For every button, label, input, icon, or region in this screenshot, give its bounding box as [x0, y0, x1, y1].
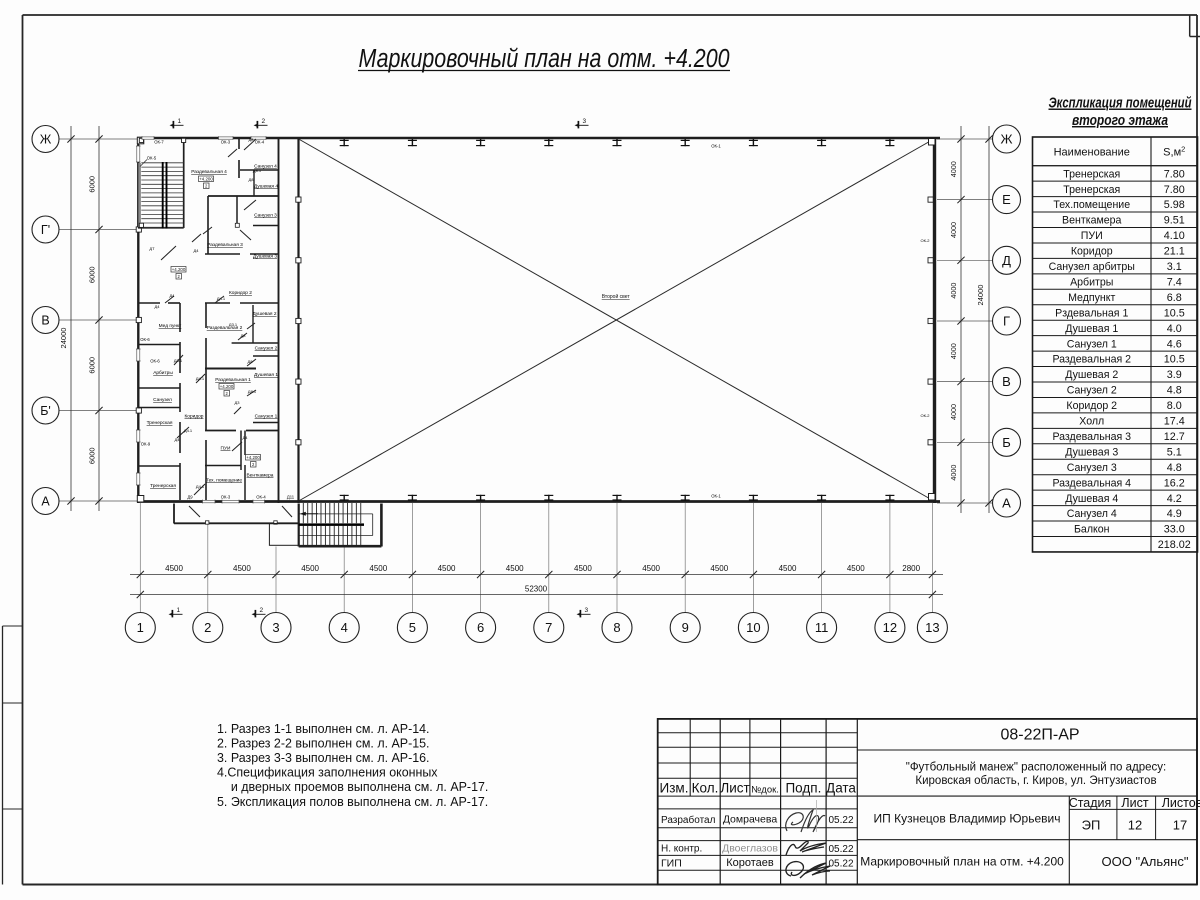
svg-text:Санузел 1: Санузел 1 [255, 414, 278, 420]
svg-text:Балкон: Балкон [1074, 524, 1110, 536]
svg-text:Раздевальная 4: Раздевальная 4 [191, 169, 227, 175]
svg-text:4500: 4500 [779, 564, 797, 573]
svg-text:Стадия: Стадия [1069, 796, 1112, 810]
svg-text:4000: 4000 [949, 465, 958, 481]
svg-text:Ж: Ж [40, 132, 52, 146]
svg-text:Двоеглазов: Двоеглазов [722, 842, 778, 854]
svg-text:Изм.: Изм. [660, 780, 689, 795]
svg-text:Раздевальная 2: Раздевальная 2 [207, 325, 243, 331]
svg-text:05.22: 05.22 [828, 859, 853, 870]
svg-text:3.1: 3.1 [1167, 261, 1182, 273]
svg-text:Санузел 1: Санузел 1 [1067, 338, 1117, 350]
svg-text:17: 17 [1173, 818, 1187, 833]
svg-text:Г': Г' [41, 223, 50, 237]
svg-text:Второй свет: Второй свет [602, 293, 631, 300]
svg-text:Душевая 4: Душевая 4 [254, 184, 278, 190]
svg-text:Листов: Листов [1162, 796, 1200, 810]
svg-text:Арбитры: Арбитры [1070, 276, 1113, 288]
svg-text:№док.: №док. [751, 785, 779, 796]
svg-text:Д8.1: Д8.1 [253, 168, 262, 173]
svg-text:7.80: 7.80 [1164, 184, 1185, 196]
svg-text:ОК-3: ОК-3 [221, 140, 231, 145]
svg-text:Раздевальная 3: Раздевальная 3 [1052, 431, 1131, 443]
svg-text:Маркировочный план на отм. +4.: Маркировочный план на отм. +4.200 [860, 855, 1064, 869]
svg-text:Маркировочный план на отм. +4.: Маркировочный план на отм. +4.200 [359, 45, 730, 73]
svg-text:4.6: 4.6 [1167, 338, 1182, 350]
svg-text:Раздевальная 4: Раздевальная 4 [1052, 477, 1131, 489]
svg-text:Коротаев: Коротаев [726, 857, 774, 869]
svg-text:12: 12 [883, 620, 897, 635]
svg-text:4.2: 4.2 [1167, 493, 1182, 505]
svg-text:Мед пункт: Мед пункт [159, 323, 183, 329]
svg-text:10: 10 [746, 620, 760, 635]
svg-text:Кол.: Кол. [692, 780, 719, 795]
svg-text:Д3.1: Д3.1 [174, 358, 183, 363]
svg-text:Коридор 2: Коридор 2 [229, 290, 252, 296]
svg-text:Тренерская: Тренерская [147, 420, 173, 426]
svg-text:Тренерская: Тренерская [1063, 184, 1120, 196]
svg-text:7.80: 7.80 [1164, 168, 1185, 180]
svg-text:8.0: 8.0 [1167, 400, 1182, 412]
svg-text:Лист: Лист [1121, 796, 1148, 810]
svg-text:Коридор: Коридор [1071, 246, 1113, 258]
svg-text:+4.200: +4.200 [220, 384, 234, 389]
svg-text:2: 2 [259, 607, 263, 614]
svg-text:Экспликация помещений: Экспликация помещений [1049, 96, 1192, 112]
svg-text:2800: 2800 [902, 564, 920, 573]
svg-text:17.4: 17.4 [1164, 416, 1185, 428]
svg-text:Д9: Д9 [187, 495, 193, 500]
svg-text:4.0: 4.0 [1167, 323, 1182, 335]
svg-text:ОК-9: ОК-9 [141, 442, 151, 447]
svg-text:"Футбольный манеж" расположенн: "Футбольный манеж" расположенный по адре… [906, 762, 1167, 774]
svg-text:Подп.: Подп. [785, 780, 821, 795]
svg-text:ООО "Альянс": ООО "Альянс" [1102, 854, 1189, 869]
svg-text:6: 6 [477, 620, 484, 635]
svg-text:1. Разрез 1-1 выполнен см. л.: 1. Разрез 1-1 выполнен см. л. АР-14. [217, 722, 430, 736]
svg-text:ЭП: ЭП [1082, 818, 1101, 833]
svg-text:4500: 4500 [369, 564, 387, 573]
svg-text:Душевая 4: Душевая 4 [1065, 493, 1118, 505]
svg-text:9.51: 9.51 [1164, 215, 1185, 227]
svg-text:Е: Е [1002, 192, 1011, 207]
svg-text:Раздевальная 1: Раздевальная 1 [215, 377, 251, 383]
svg-text:ОК-3: ОК-3 [221, 495, 231, 500]
svg-text:4000: 4000 [949, 222, 958, 238]
svg-text:ДТ: ДТ [149, 246, 155, 251]
svg-text:Санузел 3: Санузел 3 [1067, 462, 1117, 474]
svg-text:Б: Б [1002, 435, 1011, 450]
svg-text:Венткамера: Венткамера [1062, 215, 1121, 227]
svg-text:Душевая 2: Душевая 2 [1065, 369, 1118, 381]
svg-text:Д4: Д4 [194, 248, 200, 253]
svg-text:4500: 4500 [301, 564, 319, 573]
svg-text:Д4: Д4 [170, 293, 176, 298]
svg-text:12.7: 12.7 [1164, 431, 1185, 443]
svg-text:4.9: 4.9 [1167, 508, 1182, 520]
svg-text:4000: 4000 [949, 283, 958, 299]
svg-text:3. Разрез 3-3 выполнен см. л.: 3. Разрез 3-3 выполнен см. л. АР-16. [217, 751, 430, 765]
svg-text:Д11: Д11 [287, 495, 295, 500]
svg-text:ОК-2: ОК-2 [921, 238, 931, 243]
svg-text:Рздевальная 1: Рздевальная 1 [1055, 307, 1128, 319]
svg-text:ОК-5: ОК-5 [147, 156, 157, 161]
svg-text:4500: 4500 [438, 564, 456, 573]
svg-text:Д4.1: Д4.1 [184, 428, 193, 433]
svg-text:Раздевальная 3: Раздевальная 3 [207, 242, 243, 248]
svg-text:4500: 4500 [710, 564, 728, 573]
svg-text:Душевая 1: Душевая 1 [1065, 323, 1118, 335]
svg-text:9: 9 [682, 620, 689, 635]
svg-text:ОК-6: ОК-6 [140, 337, 150, 342]
svg-text:Дата: Дата [826, 780, 856, 795]
svg-text:24000: 24000 [976, 285, 985, 306]
svg-text:Душевая 2: Душевая 2 [252, 311, 276, 317]
svg-text:Д8: Д8 [249, 177, 255, 182]
svg-text:33.0: 33.0 [1164, 524, 1185, 536]
svg-text:Санузел: Санузел [153, 397, 172, 403]
svg-text:ОК-1: ОК-1 [711, 144, 721, 149]
svg-text:А: А [41, 494, 50, 508]
svg-text:Домрачева: Домрачева [723, 813, 778, 825]
svg-text:+4.200: +4.200 [246, 455, 260, 460]
svg-text:13: 13 [925, 620, 939, 635]
svg-text:Д4: Д4 [243, 435, 249, 440]
svg-text:Д8: Д8 [248, 359, 254, 364]
svg-text:ПУИ: ПУИ [1081, 230, 1103, 242]
svg-text:10.5: 10.5 [1164, 354, 1185, 366]
svg-text:ОК-6: ОК-6 [150, 359, 160, 364]
svg-text:+4.200: +4.200 [199, 176, 213, 181]
svg-text:Санузел 2: Санузел 2 [255, 346, 278, 352]
svg-text:3: 3 [584, 607, 588, 614]
svg-text:Холл: Холл [1079, 416, 1104, 428]
svg-text:3.9: 3.9 [1167, 369, 1182, 381]
svg-text:4500: 4500 [847, 564, 865, 573]
svg-text:ГИП: ГИП [661, 857, 682, 869]
svg-text:Д8: Д8 [241, 333, 247, 338]
svg-text:Санузел 3: Санузел 3 [254, 213, 277, 219]
svg-text:и дверных проемов выполнена см: и дверных проемов выполнена см. л. АР-17… [217, 780, 488, 794]
svg-text:6000: 6000 [88, 447, 97, 464]
svg-text:5. Экспликация полов выполнена: 5. Экспликация полов выполнена см. л. АР… [217, 795, 488, 809]
svg-text:7: 7 [545, 620, 552, 635]
svg-text:ИП Кузнецов Владимир Юрьевич: ИП Кузнецов Владимир Юрьевич [874, 812, 1061, 826]
svg-text:8: 8 [613, 620, 620, 635]
svg-text:ОК-1: ОК-1 [711, 494, 721, 499]
svg-text:4.8: 4.8 [1167, 462, 1182, 474]
svg-text:1: 1 [176, 607, 180, 614]
svg-text:4.8: 4.8 [1167, 385, 1182, 397]
svg-text:Тех.помещение: Тех.помещение [1053, 199, 1130, 211]
svg-text:Коридор 2: Коридор 2 [1066, 400, 1117, 412]
svg-text:Г: Г [1003, 314, 1010, 329]
svg-text:21.1: 21.1 [1164, 246, 1185, 258]
svg-text:Тех. помещение: Тех. помещение [206, 478, 242, 484]
svg-text:6000: 6000 [88, 176, 97, 193]
svg-text:Б': Б' [40, 404, 51, 418]
svg-text:В: В [41, 313, 49, 327]
svg-text:2: 2 [261, 118, 265, 125]
svg-text:4500: 4500 [165, 564, 183, 573]
svg-text:Д3: Д3 [235, 400, 241, 405]
svg-text:1: 1 [137, 620, 144, 635]
svg-text:Д4.1: Д4.1 [196, 376, 205, 381]
svg-text:05.22: 05.22 [828, 815, 853, 826]
svg-text:4.10: 4.10 [1164, 230, 1185, 242]
svg-text:А: А [1002, 496, 1011, 511]
svg-text:Д8: Д8 [249, 137, 255, 142]
svg-text:Венткамера: Венткамера [247, 473, 274, 479]
svg-text:5.98: 5.98 [1164, 199, 1185, 211]
svg-text:Арбитры: Арбитры [153, 370, 173, 376]
svg-text:ОК-4: ОК-4 [255, 140, 265, 145]
svg-text:Тренерская: Тренерская [150, 483, 176, 489]
svg-text:Н. контр.: Н. контр. [661, 844, 702, 855]
svg-text:ОК-4: ОК-4 [256, 495, 266, 500]
svg-text:12: 12 [1128, 818, 1142, 833]
svg-text:4000: 4000 [949, 404, 958, 420]
svg-text:Наименование: Наименование [1054, 146, 1130, 158]
svg-text:4500: 4500 [574, 564, 592, 573]
svg-text:Душевая 1: Душевая 1 [254, 372, 278, 378]
svg-text:11: 11 [815, 620, 829, 635]
svg-text:7.4: 7.4 [1167, 276, 1182, 288]
svg-text:3: 3 [582, 118, 586, 125]
svg-text:16.2: 16.2 [1164, 477, 1185, 489]
svg-text:ОК-7: ОК-7 [154, 140, 164, 145]
svg-text:2. Разрез 2-2 выполнен см. л.: 2. Разрез 2-2 выполнен см. л. АР-15. [217, 737, 430, 751]
svg-text:218.02: 218.02 [1158, 539, 1191, 551]
svg-text:4000: 4000 [949, 161, 958, 177]
svg-text:4500: 4500 [506, 564, 524, 573]
svg-text:Медпункт: Медпункт [1068, 292, 1115, 304]
svg-text:Ж: Ж [1000, 132, 1012, 147]
svg-text:Душевая 3: Душевая 3 [1065, 446, 1118, 458]
svg-text:4500: 4500 [642, 564, 660, 573]
svg-text:Лист: Лист [720, 780, 749, 795]
svg-text:6000: 6000 [88, 266, 97, 283]
svg-text:Душевая 3: Душевая 3 [253, 254, 277, 260]
svg-text:Д4: Д4 [155, 304, 161, 309]
svg-text:3: 3 [272, 620, 279, 635]
svg-text:ОК-2: ОК-2 [921, 413, 931, 418]
svg-text:Раздевальная 2: Раздевальная 2 [1052, 354, 1131, 366]
svg-text:1: 1 [177, 118, 181, 125]
svg-text:Д4: Д4 [175, 437, 181, 442]
svg-text:24000: 24000 [59, 328, 68, 349]
svg-text:4.Спецификация заполнения окон: 4.Спецификация заполнения оконных [217, 766, 438, 780]
svg-text:2: 2 [204, 620, 211, 635]
svg-text:Д4.1: Д4.1 [217, 296, 226, 301]
svg-text:08-22П-АР: 08-22П-АР [1000, 727, 1079, 744]
svg-text:Санузел 2: Санузел 2 [1067, 385, 1117, 397]
svg-text:Тренерская: Тренерская [1063, 168, 1120, 180]
svg-text:10.5: 10.5 [1164, 307, 1185, 319]
svg-text:Д8.1: Д8.1 [248, 389, 257, 394]
svg-text:второго этажа: второго этажа [1072, 113, 1168, 129]
svg-text:Кировская область, г. Киров, у: Кировская область, г. Киров, ул. Энтузиа… [915, 775, 1156, 787]
svg-text:5.1: 5.1 [1167, 446, 1182, 458]
svg-text:6.8: 6.8 [1167, 292, 1182, 304]
svg-text:Д4.1: Д4.1 [196, 484, 205, 489]
svg-text:4: 4 [341, 620, 348, 635]
svg-text:52300: 52300 [525, 585, 548, 594]
svg-text:Разработал: Разработал [661, 814, 716, 826]
svg-text:+4.200: +4.200 [172, 267, 186, 272]
svg-text:Санузел 4: Санузел 4 [1067, 508, 1117, 520]
svg-text:4000: 4000 [949, 343, 958, 359]
svg-text:4500: 4500 [233, 564, 251, 573]
svg-text:Коридор: Коридор [185, 414, 204, 420]
svg-text:6000: 6000 [88, 357, 97, 374]
svg-text:5: 5 [409, 620, 416, 635]
svg-text:Санузел арбитры: Санузел арбитры [1049, 261, 1135, 273]
svg-text:В: В [1002, 374, 1011, 389]
svg-text:Д: Д [1002, 253, 1011, 268]
svg-text:ПУИ: ПУИ [221, 446, 231, 452]
svg-text:Д3.1: Д3.1 [229, 322, 238, 327]
svg-text:05.22: 05.22 [828, 844, 853, 855]
